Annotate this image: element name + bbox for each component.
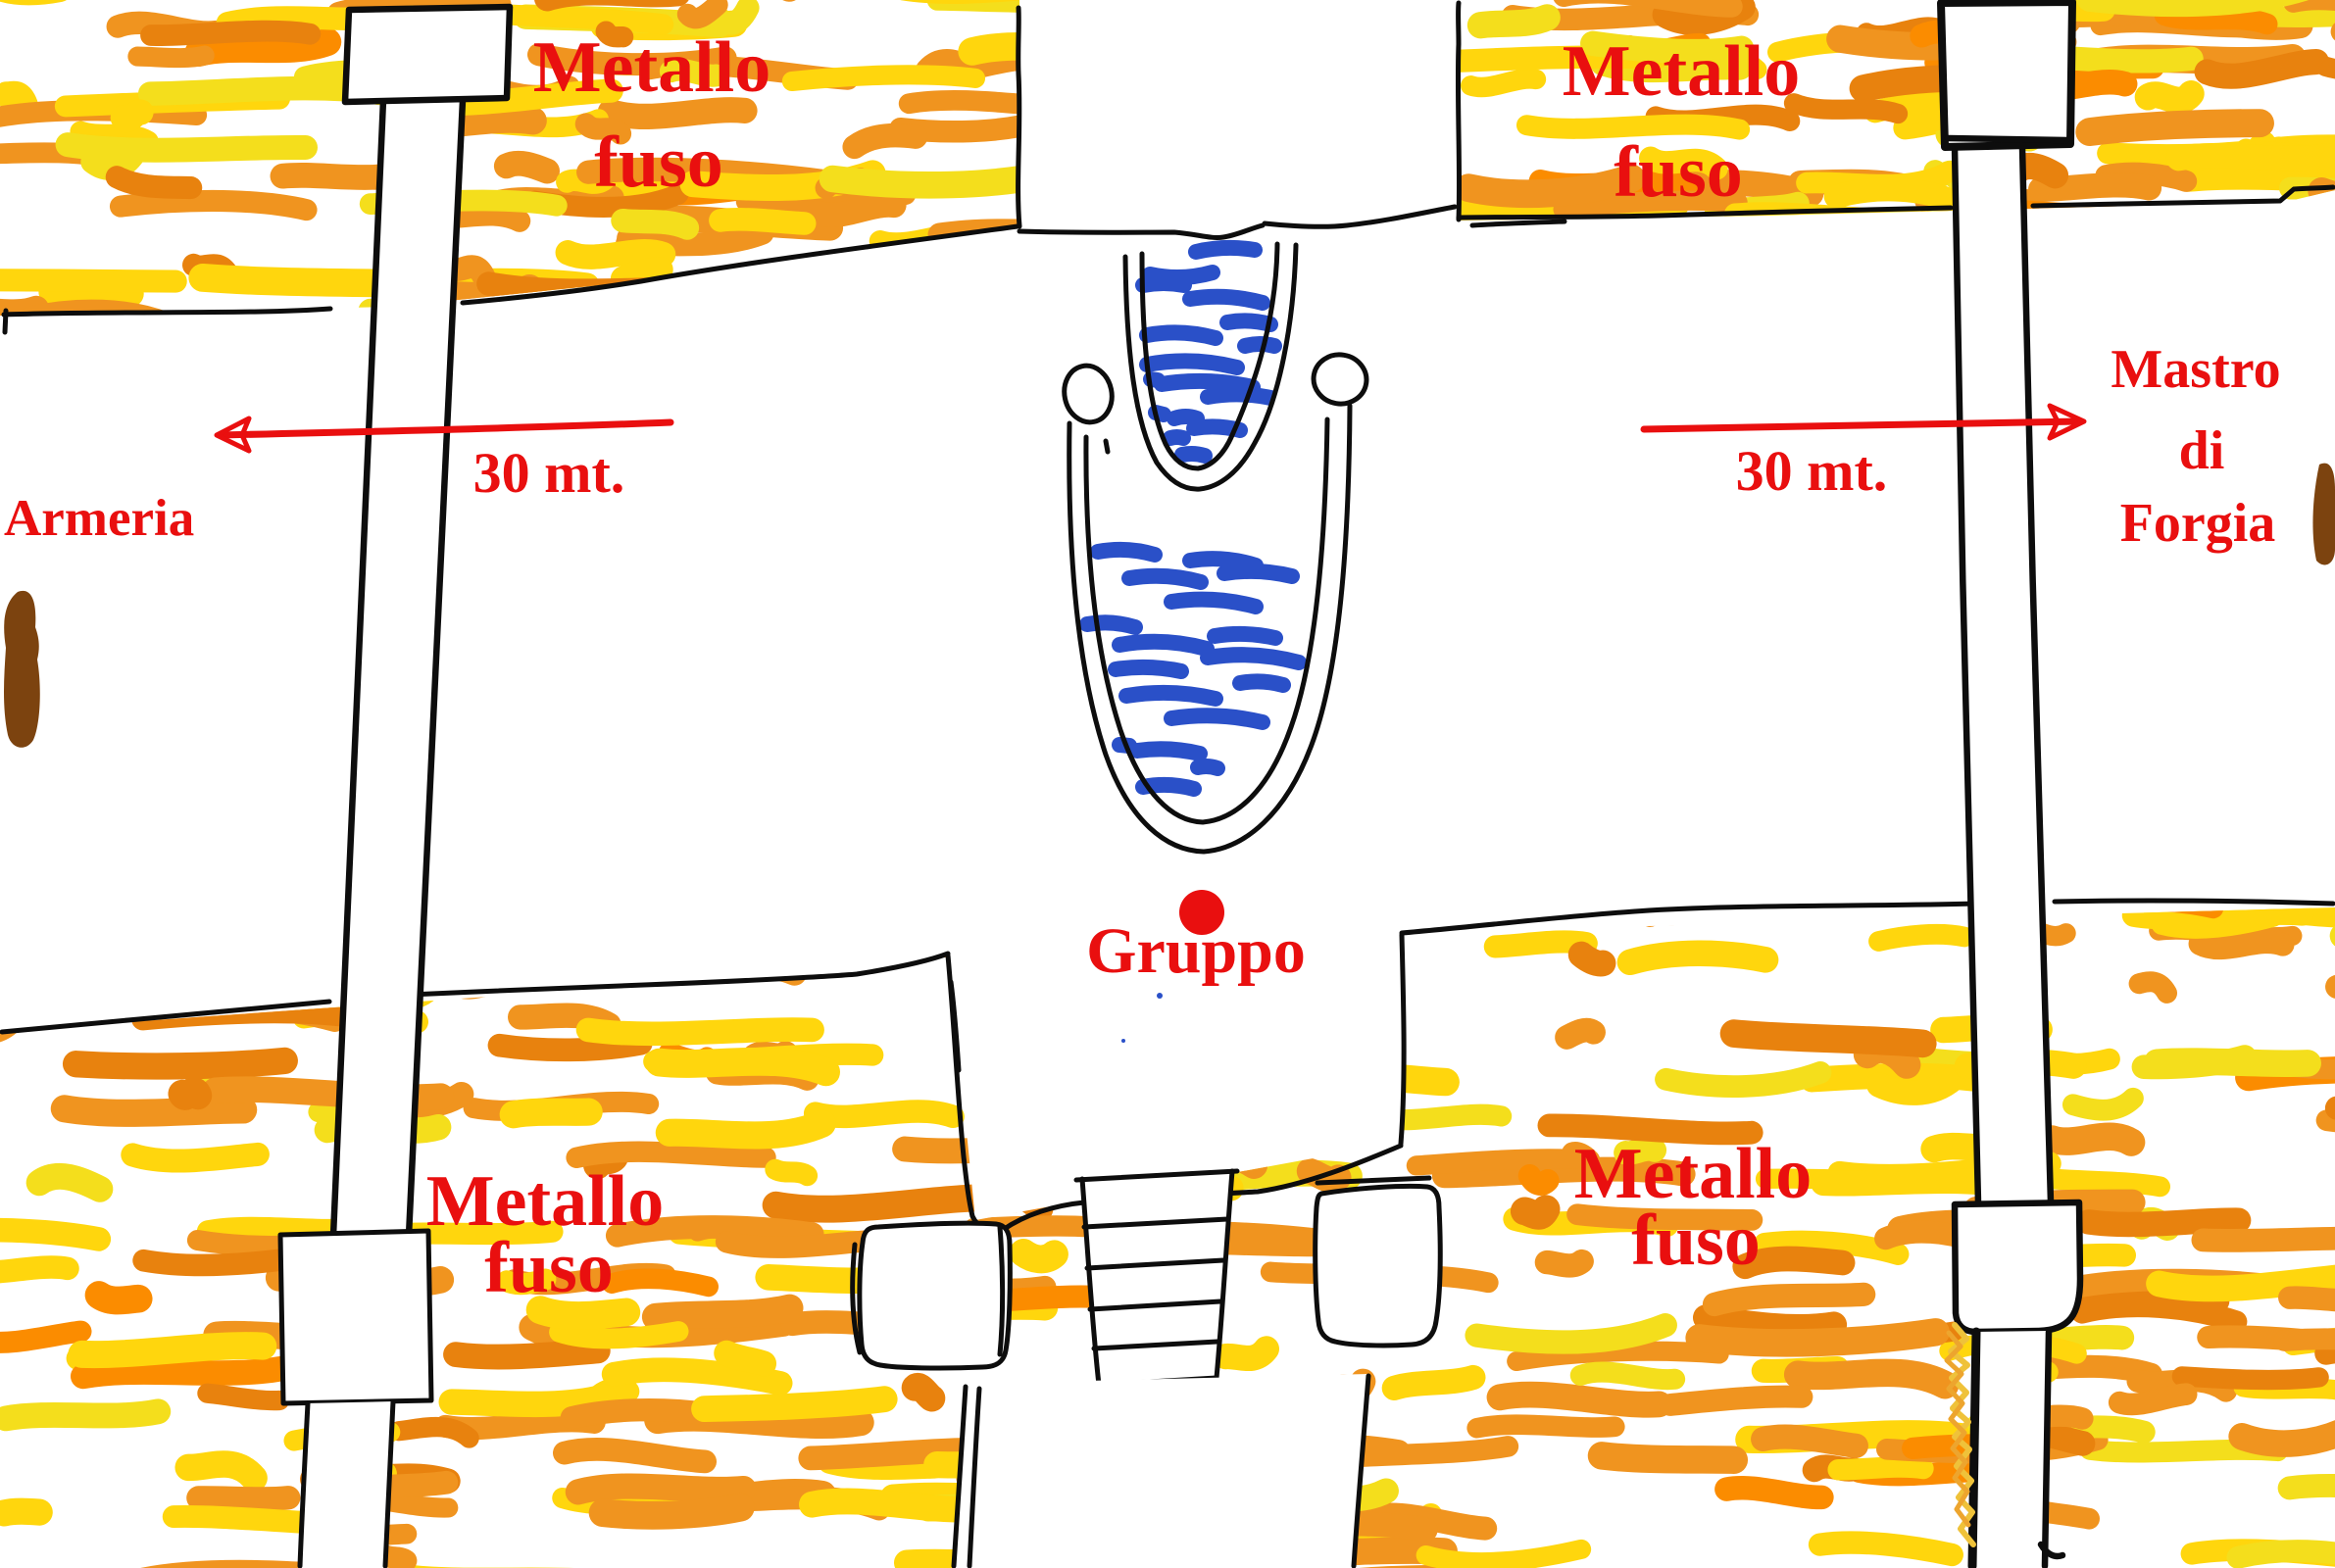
molten-stroke <box>76 1060 285 1066</box>
water-stroke <box>1182 454 1205 456</box>
molten-stroke <box>151 31 310 35</box>
molten-stroke <box>0 280 175 282</box>
water-stroke <box>1170 437 1183 438</box>
molten-stroke <box>1481 18 1548 25</box>
molten-stroke <box>2284 1339 2335 1350</box>
water-stroke <box>1137 749 1200 754</box>
molten-stroke <box>1524 1209 1546 1216</box>
pedestal-right <box>1316 1178 1441 1346</box>
molten-stroke <box>132 1154 258 1161</box>
molten-stroke <box>670 1124 822 1136</box>
molten-stroke <box>660 1061 826 1072</box>
molten-stroke <box>612 1279 709 1287</box>
molten-stroke <box>571 1410 708 1418</box>
molten-stroke <box>1500 1395 1660 1404</box>
molten-stroke <box>2290 1288 2335 1300</box>
molten-stroke <box>1794 103 1898 114</box>
molten-stroke <box>1477 1425 1615 1429</box>
molten-stroke <box>495 14 664 24</box>
molten-stroke <box>117 177 190 188</box>
molten-stroke <box>99 1296 138 1300</box>
water-stroke <box>1227 320 1270 324</box>
molten-stroke <box>603 1507 740 1515</box>
molten-stroke <box>855 135 916 147</box>
molten-stroke <box>65 1108 243 1113</box>
label-molten-bottom-left-line2: fuso <box>484 1228 614 1308</box>
water-stroke <box>1143 283 1184 285</box>
water-stroke <box>1240 681 1283 685</box>
molten-stroke <box>2327 1120 2335 1126</box>
molten-stroke <box>2119 1395 2186 1404</box>
molten-stroke <box>4 1511 39 1513</box>
molten-stroke <box>1023 1252 1054 1259</box>
molten-stroke <box>1630 954 1765 962</box>
molten-stroke <box>188 1464 254 1478</box>
molten-stroke <box>1567 1030 1594 1037</box>
molten-stroke <box>507 164 547 171</box>
molten-stroke <box>81 1346 263 1354</box>
molten-stroke <box>2326 1351 2335 1359</box>
molten-stroke <box>565 1449 705 1462</box>
molten-stroke <box>68 145 305 151</box>
forge-map-sketch: Metallo fuso Metallo fuso Metallo fuso M… <box>0 0 2335 1568</box>
molten-stroke <box>1549 1125 1751 1133</box>
molten-stroke <box>1225 1348 1267 1358</box>
molten-stroke <box>207 1394 279 1400</box>
pillar-left-bottom-cap <box>280 1231 431 1403</box>
water-stroke <box>1116 667 1181 671</box>
label-mastro-line2: di <box>2179 420 2225 481</box>
molten-stroke <box>456 1350 598 1356</box>
molten-stroke <box>2073 1099 2133 1110</box>
molten-stroke <box>576 1151 766 1157</box>
molten-stroke <box>1416 1158 1573 1165</box>
molten-stroke <box>52 292 131 296</box>
water-stroke <box>1129 576 1201 582</box>
molten-stroke <box>1700 1332 1936 1343</box>
molten-stroke <box>2148 94 2191 101</box>
molten-stroke <box>1764 1437 1857 1445</box>
molten-stroke <box>2089 1220 2239 1224</box>
label-molten-top-left-line1: Metallo <box>533 27 770 108</box>
molten-stroke <box>452 1397 604 1404</box>
door-marker-left <box>4 591 40 748</box>
molten-stroke <box>2053 1137 2132 1143</box>
molten-stroke <box>1734 1034 1922 1044</box>
molten-stroke <box>1879 1078 1954 1093</box>
label-molten-bottom-right-line2: fuso <box>1631 1200 1761 1281</box>
water-stroke <box>1126 693 1216 699</box>
molten-stroke <box>1706 1318 1833 1328</box>
molten-stroke <box>6 1411 159 1418</box>
molten-stroke <box>182 1092 198 1097</box>
molten-stroke <box>2090 123 2260 132</box>
molten-stroke <box>1798 1373 1945 1385</box>
water-stroke <box>1098 550 1155 555</box>
molten-stroke <box>386 1556 406 1561</box>
label-mastro-line1: Mastro <box>2111 339 2280 400</box>
molten-stroke <box>792 74 975 81</box>
molten-stroke <box>1468 178 1631 194</box>
water-stroke <box>1147 361 1237 367</box>
molten-stroke <box>915 1387 931 1398</box>
water-stroke <box>1147 332 1216 338</box>
corridor-below-stairs <box>954 1374 1368 1568</box>
molten-stroke <box>705 1399 885 1409</box>
molten-stroke <box>816 1111 953 1116</box>
water-stroke <box>1208 394 1275 399</box>
molten-stroke <box>1470 78 1536 87</box>
molten-stroke <box>0 1332 81 1343</box>
molten-stroke <box>2144 1057 2245 1067</box>
molten-stroke <box>2290 1486 2335 1494</box>
molten-stroke <box>2161 917 2273 929</box>
pedestal-left <box>853 1223 1011 1368</box>
water-stroke <box>1208 655 1299 662</box>
water-stroke <box>1215 634 1275 638</box>
molten-stroke <box>588 1030 813 1034</box>
label-gruppo: Gruppo <box>1086 915 1306 987</box>
molten-stroke <box>1529 1176 1548 1185</box>
molten-stroke <box>560 1332 679 1339</box>
molten-stroke <box>568 252 663 258</box>
molten-stroke <box>1714 1295 1863 1304</box>
molten-stroke <box>2179 156 2328 159</box>
water-stroke <box>1162 381 1253 387</box>
molten-stroke <box>726 1353 764 1364</box>
molten-stroke <box>198 1497 288 1498</box>
label-armeria: Armeria <box>4 490 194 547</box>
molten-stroke <box>720 220 805 223</box>
water-stroke <box>1224 571 1292 576</box>
molten-stroke <box>2208 62 2316 76</box>
water-stroke <box>1190 297 1263 303</box>
molten-stroke <box>656 1308 790 1317</box>
molten-stroke <box>1670 1396 1802 1404</box>
pillar-right-bottom-cap <box>1955 1202 2080 1332</box>
water-stroke <box>1174 416 1197 418</box>
molten-stroke <box>1547 1261 1582 1265</box>
molten-stroke <box>1580 1372 1674 1380</box>
molten-stroke <box>1879 934 1964 941</box>
molten-stroke <box>1602 1455 1734 1459</box>
molten-stroke <box>2200 942 2283 948</box>
molten-stroke <box>611 110 745 117</box>
molten-stroke <box>1726 1488 1821 1497</box>
molten-stroke <box>0 1230 99 1239</box>
water-stroke <box>1171 600 1256 607</box>
molten-stroke <box>1820 1543 1953 1554</box>
pillar-right-top-cap <box>1941 2 2072 147</box>
label-molten-top-left-line2: fuso <box>594 122 723 203</box>
molten-stroke <box>39 1176 100 1189</box>
label-mastro-line3: Forgia <box>2120 493 2276 554</box>
molten-stroke <box>578 1487 744 1493</box>
molten-stroke <box>124 112 141 120</box>
molten-stroke <box>1394 1378 1473 1389</box>
molten-stroke <box>2182 1376 2319 1380</box>
molten-stroke <box>121 201 307 210</box>
water-stroke <box>1196 248 1255 252</box>
molten-stroke <box>1581 955 1603 963</box>
molten-stroke <box>1527 124 1740 129</box>
molten-stroke <box>7 94 25 105</box>
water-stroke <box>1171 715 1263 722</box>
molten-stroke <box>688 5 719 19</box>
molten-stroke <box>775 1169 808 1175</box>
label-molten-top-right-line1: Metallo <box>1563 31 1800 112</box>
molten-stroke <box>399 1427 470 1438</box>
water-stroke <box>1198 766 1217 768</box>
label-distance-right: 30 mt. <box>1736 439 1888 503</box>
molten-stroke <box>0 1267 68 1272</box>
molten-stroke <box>137 56 204 59</box>
molten-stroke <box>540 1310 626 1316</box>
molten-stroke <box>83 1367 291 1377</box>
water-stroke <box>1245 344 1274 346</box>
molten-stroke <box>622 220 687 228</box>
molten-stroke <box>1838 1467 1923 1470</box>
water-stroke <box>1119 642 1207 649</box>
label-molten-top-right-line2: fuso <box>1614 132 1743 213</box>
molten-stroke <box>2090 0 2303 3</box>
molten-stroke <box>2139 982 2166 994</box>
pillar-left-top-cap <box>345 7 510 102</box>
molten-stroke <box>2203 1239 2335 1241</box>
label-distance-left: 30 mt. <box>473 441 625 505</box>
molten-stroke <box>818 205 894 215</box>
molten-stroke <box>514 1112 589 1115</box>
